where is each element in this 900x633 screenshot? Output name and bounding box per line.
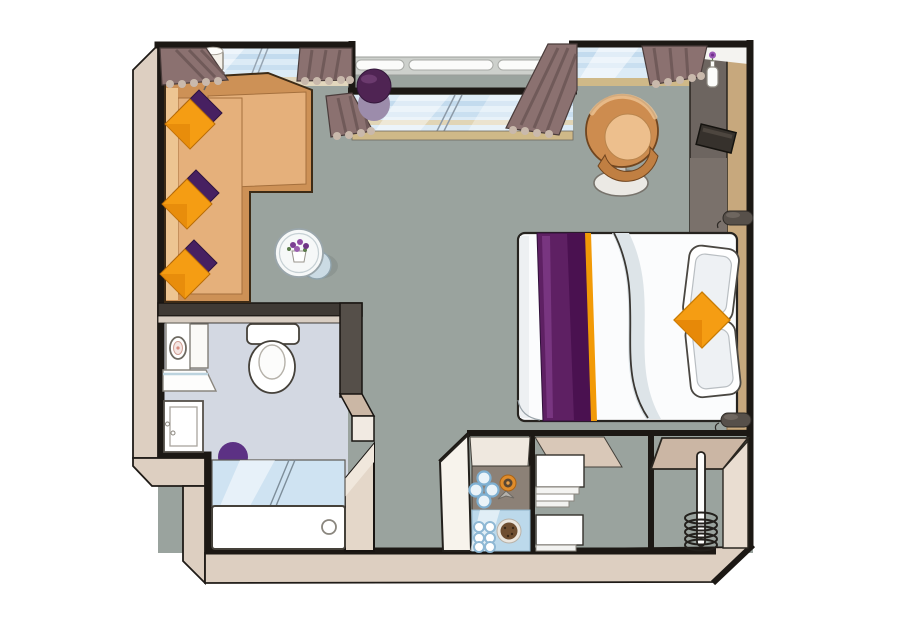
kitchenette	[440, 435, 530, 552]
floor-plan-page	[0, 0, 900, 633]
burner	[500, 475, 516, 491]
ottoman-pouf	[357, 69, 391, 121]
bathtub	[212, 460, 345, 549]
bathroom-doorway	[352, 416, 374, 441]
drain	[322, 520, 336, 534]
armchair	[586, 95, 658, 196]
cabinet-lower	[690, 158, 727, 232]
toilet	[247, 324, 299, 393]
floor-plan	[0, 0, 900, 633]
clothes-rail	[697, 452, 705, 546]
curtain	[297, 48, 354, 85]
bed	[518, 211, 753, 430]
cups	[474, 522, 495, 552]
bed-runner	[537, 233, 597, 421]
plate	[497, 519, 521, 543]
